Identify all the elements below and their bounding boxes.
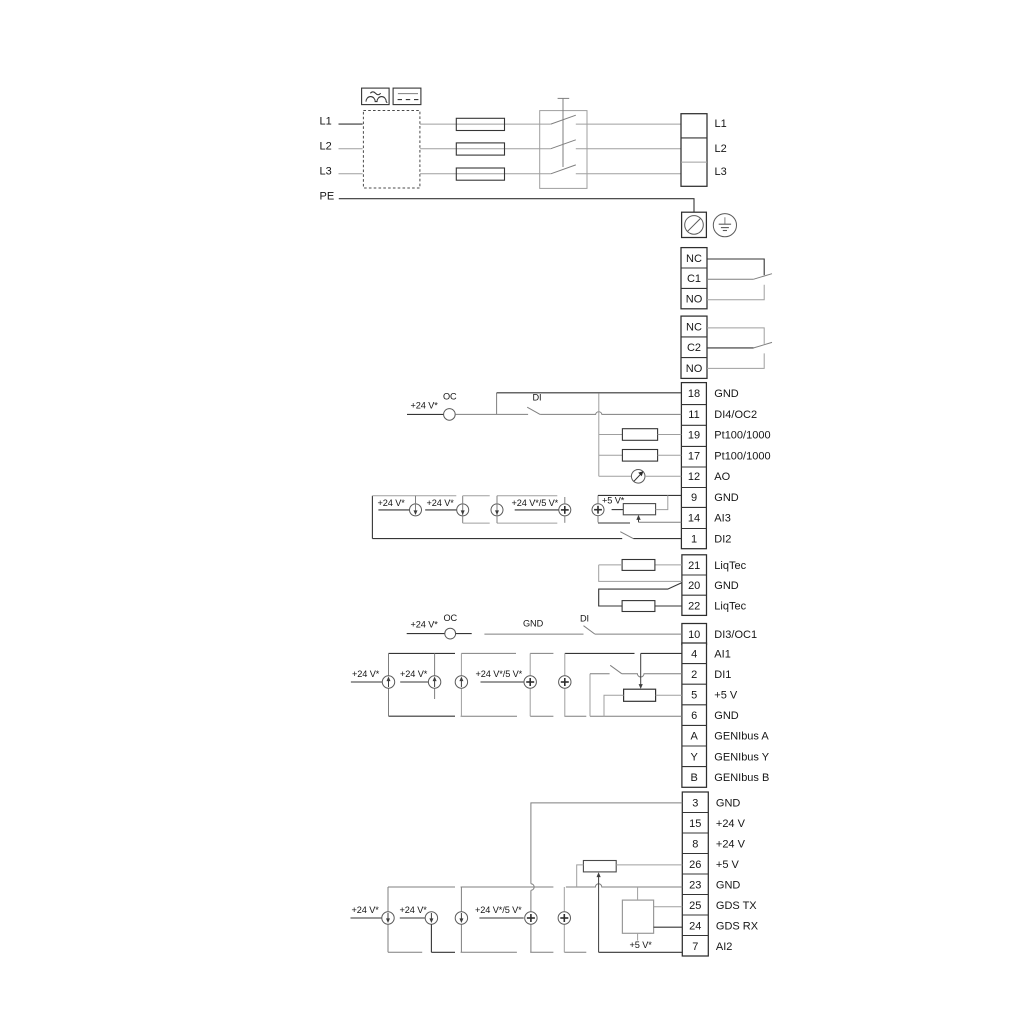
svg-text:A: A bbox=[691, 731, 699, 743]
svg-text:12: 12 bbox=[688, 471, 700, 483]
svg-text:C2: C2 bbox=[687, 342, 701, 354]
svg-text:L1: L1 bbox=[320, 116, 332, 128]
svg-text:DI3/OC1: DI3/OC1 bbox=[714, 629, 757, 641]
svg-text:GDS TX: GDS TX bbox=[716, 900, 757, 912]
svg-text:GND: GND bbox=[523, 619, 544, 629]
svg-text:GND: GND bbox=[716, 879, 741, 891]
svg-text:+5 V*: +5 V* bbox=[630, 940, 653, 950]
svg-text:7: 7 bbox=[692, 941, 698, 953]
svg-text:L3: L3 bbox=[320, 166, 332, 178]
svg-text:L1: L1 bbox=[715, 118, 727, 130]
svg-text:14: 14 bbox=[688, 513, 700, 525]
svg-text:19: 19 bbox=[688, 430, 700, 442]
svg-text:DI1: DI1 bbox=[714, 669, 731, 681]
svg-text:GENIbus A: GENIbus A bbox=[714, 731, 769, 743]
svg-text:NO: NO bbox=[686, 363, 703, 375]
svg-text:L2: L2 bbox=[715, 143, 727, 155]
svg-text:23: 23 bbox=[689, 879, 701, 891]
svg-text:5: 5 bbox=[691, 690, 697, 702]
svg-text:22: 22 bbox=[688, 600, 700, 612]
svg-text:+5 V: +5 V bbox=[716, 859, 740, 871]
svg-text:+5 V*: +5 V* bbox=[602, 495, 625, 505]
svg-text:Pt100/1000: Pt100/1000 bbox=[714, 430, 770, 442]
svg-text:1: 1 bbox=[691, 533, 697, 545]
svg-text:9: 9 bbox=[691, 492, 697, 504]
svg-text:24: 24 bbox=[689, 920, 701, 932]
svg-text:17: 17 bbox=[688, 450, 700, 462]
svg-text:21: 21 bbox=[688, 560, 700, 572]
svg-text:NC: NC bbox=[686, 253, 702, 265]
svg-text:LiqTec: LiqTec bbox=[714, 560, 746, 572]
svg-text:OC: OC bbox=[444, 613, 458, 623]
svg-text:8: 8 bbox=[692, 838, 698, 850]
svg-text:18: 18 bbox=[688, 388, 700, 400]
svg-text:PE: PE bbox=[320, 191, 335, 203]
svg-text:+24 V*/5 V*: +24 V*/5 V* bbox=[475, 905, 522, 915]
svg-text:11: 11 bbox=[688, 409, 699, 421]
svg-text:OC: OC bbox=[443, 392, 457, 402]
svg-text:+24 V*: +24 V* bbox=[400, 905, 428, 915]
svg-text:+24 V*: +24 V* bbox=[411, 401, 439, 411]
svg-text:26: 26 bbox=[689, 859, 701, 871]
svg-text:GDS RX: GDS RX bbox=[716, 920, 759, 932]
svg-text:+24 V*: +24 V* bbox=[378, 498, 406, 508]
svg-text:+24 V*: +24 V* bbox=[352, 669, 380, 679]
svg-text:+24 V: +24 V bbox=[716, 838, 746, 850]
svg-text:25: 25 bbox=[689, 900, 701, 912]
svg-text:GND: GND bbox=[714, 388, 739, 400]
svg-text:DI2: DI2 bbox=[714, 533, 731, 545]
svg-text:AO: AO bbox=[714, 471, 730, 483]
svg-text:10: 10 bbox=[688, 629, 700, 641]
svg-text:B: B bbox=[691, 772, 698, 784]
svg-text:+24 V*: +24 V* bbox=[411, 620, 439, 630]
svg-text:NC: NC bbox=[686, 322, 702, 334]
svg-text:20: 20 bbox=[688, 580, 700, 592]
svg-text:GENIbus Y: GENIbus Y bbox=[714, 751, 769, 763]
svg-text:DI: DI bbox=[533, 393, 542, 403]
svg-text:L2: L2 bbox=[320, 141, 332, 153]
svg-text:GENIbus B: GENIbus B bbox=[714, 772, 769, 784]
svg-text:GND: GND bbox=[716, 797, 741, 809]
svg-text:3: 3 bbox=[692, 797, 698, 809]
svg-text:AI1: AI1 bbox=[714, 648, 731, 660]
svg-text:+24 V*: +24 V* bbox=[400, 669, 428, 679]
svg-text:2: 2 bbox=[691, 669, 697, 681]
svg-text:+5 V: +5 V bbox=[714, 690, 738, 702]
svg-text:L3: L3 bbox=[715, 166, 727, 178]
svg-text:LiqTec: LiqTec bbox=[714, 600, 746, 612]
svg-text:AI3: AI3 bbox=[714, 513, 731, 525]
svg-text:AI2: AI2 bbox=[716, 941, 733, 953]
svg-text:+24 V*: +24 V* bbox=[427, 498, 455, 508]
svg-text:+24 V: +24 V bbox=[716, 818, 746, 830]
svg-text:DI: DI bbox=[580, 614, 589, 624]
svg-text:GND: GND bbox=[714, 710, 739, 722]
svg-text:+24 V*: +24 V* bbox=[352, 905, 380, 915]
svg-text:GND: GND bbox=[714, 492, 739, 504]
svg-text:Pt100/1000: Pt100/1000 bbox=[714, 450, 770, 462]
svg-text:NO: NO bbox=[686, 294, 703, 306]
svg-text:+24 V*/5 V*: +24 V*/5 V* bbox=[512, 498, 559, 508]
svg-text:Y: Y bbox=[691, 751, 699, 763]
svg-text:GND: GND bbox=[714, 580, 739, 592]
svg-text:DI4/OC2: DI4/OC2 bbox=[714, 409, 757, 421]
svg-text:+24 V*/5 V*: +24 V*/5 V* bbox=[476, 669, 523, 679]
svg-text:15: 15 bbox=[689, 818, 701, 830]
svg-text:C1: C1 bbox=[687, 273, 701, 285]
svg-text:6: 6 bbox=[691, 710, 697, 722]
svg-text:4: 4 bbox=[691, 648, 697, 660]
